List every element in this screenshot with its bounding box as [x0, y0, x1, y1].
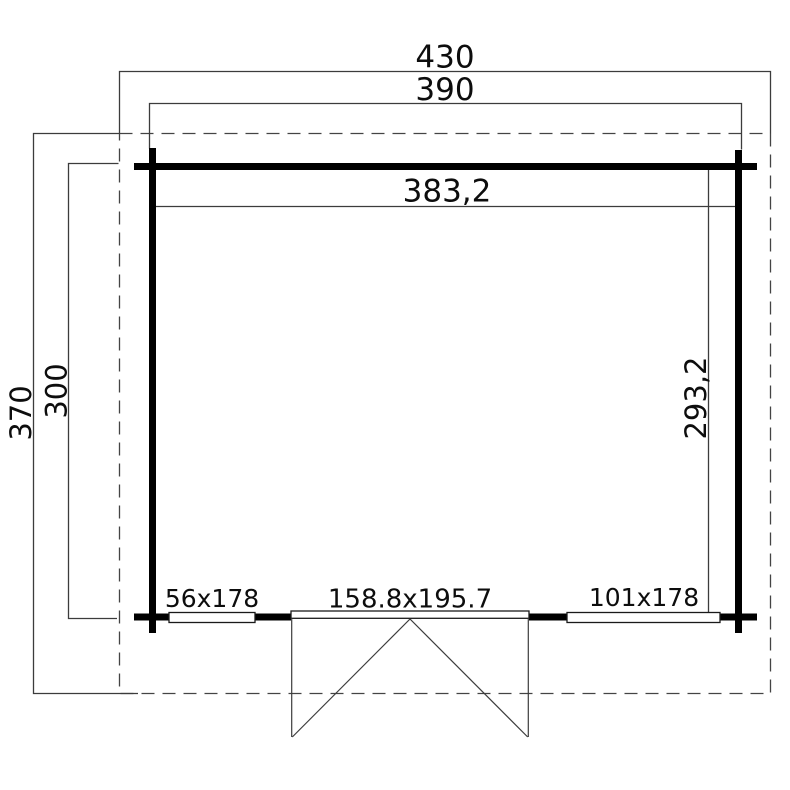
dim-text-inner-depth: 293,2 [679, 356, 713, 439]
dim-text-outer-wall-width: 390 [415, 72, 474, 108]
door-leaf-right [410, 619, 528, 737]
dim-text-inner-width: 383,2 [403, 174, 492, 210]
dim-text-total-depth: 370 [4, 385, 38, 440]
label-door: 158.8x195.7 [328, 585, 492, 615]
dim-line-outer-wall-width [150, 104, 742, 150]
dim-text-outer-wall-depth: 300 [40, 363, 74, 418]
dim-line-outer-wall-depth [69, 164, 119, 619]
floor-plan-canvas: 430 390 383,2 370 300 293,2 56x178 158.8… [0, 0, 790, 790]
window-left [169, 613, 255, 623]
floor-plan: 430 390 383,2 370 300 293,2 56x178 158.8… [0, 0, 790, 790]
window-right [567, 613, 720, 623]
label-window-left: 56x178 [165, 584, 259, 613]
label-window-right: 101x178 [589, 583, 699, 612]
dim-text-total-width: 430 [415, 40, 474, 76]
door-leaf-left [292, 619, 410, 737]
